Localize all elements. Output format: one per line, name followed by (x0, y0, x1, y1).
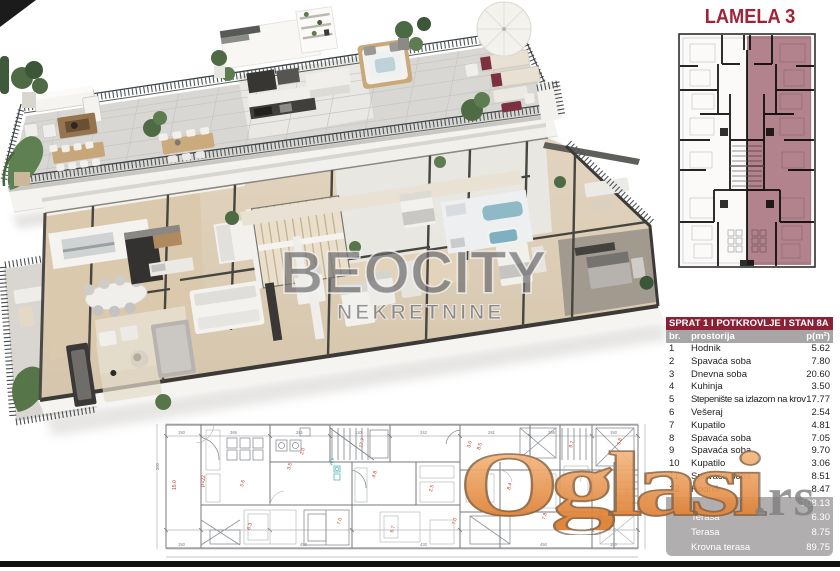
svg-text:150: 150 (178, 542, 186, 547)
svg-text:342: 342 (420, 430, 428, 435)
svg-text:300: 300 (155, 462, 160, 470)
svg-text:450: 450 (540, 542, 548, 547)
svg-text:2.0: 2.0 (299, 447, 307, 455)
svg-text:450: 450 (300, 542, 308, 547)
svg-text:9.7: 9.7 (389, 525, 397, 533)
svg-text:430: 430 (420, 542, 428, 547)
svg-text:3.5: 3.5 (286, 462, 294, 470)
svg-text:281: 281 (296, 430, 304, 435)
svg-text:7.0: 7.0 (451, 517, 459, 525)
svg-text:7.0: 7.0 (336, 517, 344, 525)
svg-text:366: 366 (230, 430, 238, 435)
svg-text:17.7: 17.7 (358, 437, 366, 448)
svg-text:2.5: 2.5 (428, 484, 436, 492)
svg-text:150: 150 (610, 542, 618, 547)
svg-text:5.6: 5.6 (239, 479, 247, 487)
svg-text:110: 110 (355, 430, 362, 435)
svg-text:ves: ves (328, 457, 336, 467)
svg-text:15.0: 15.0 (172, 480, 178, 490)
svg-text:4.8: 4.8 (371, 470, 379, 478)
svg-text:6.3: 6.3 (246, 522, 254, 530)
svg-text:150: 150 (178, 430, 186, 435)
